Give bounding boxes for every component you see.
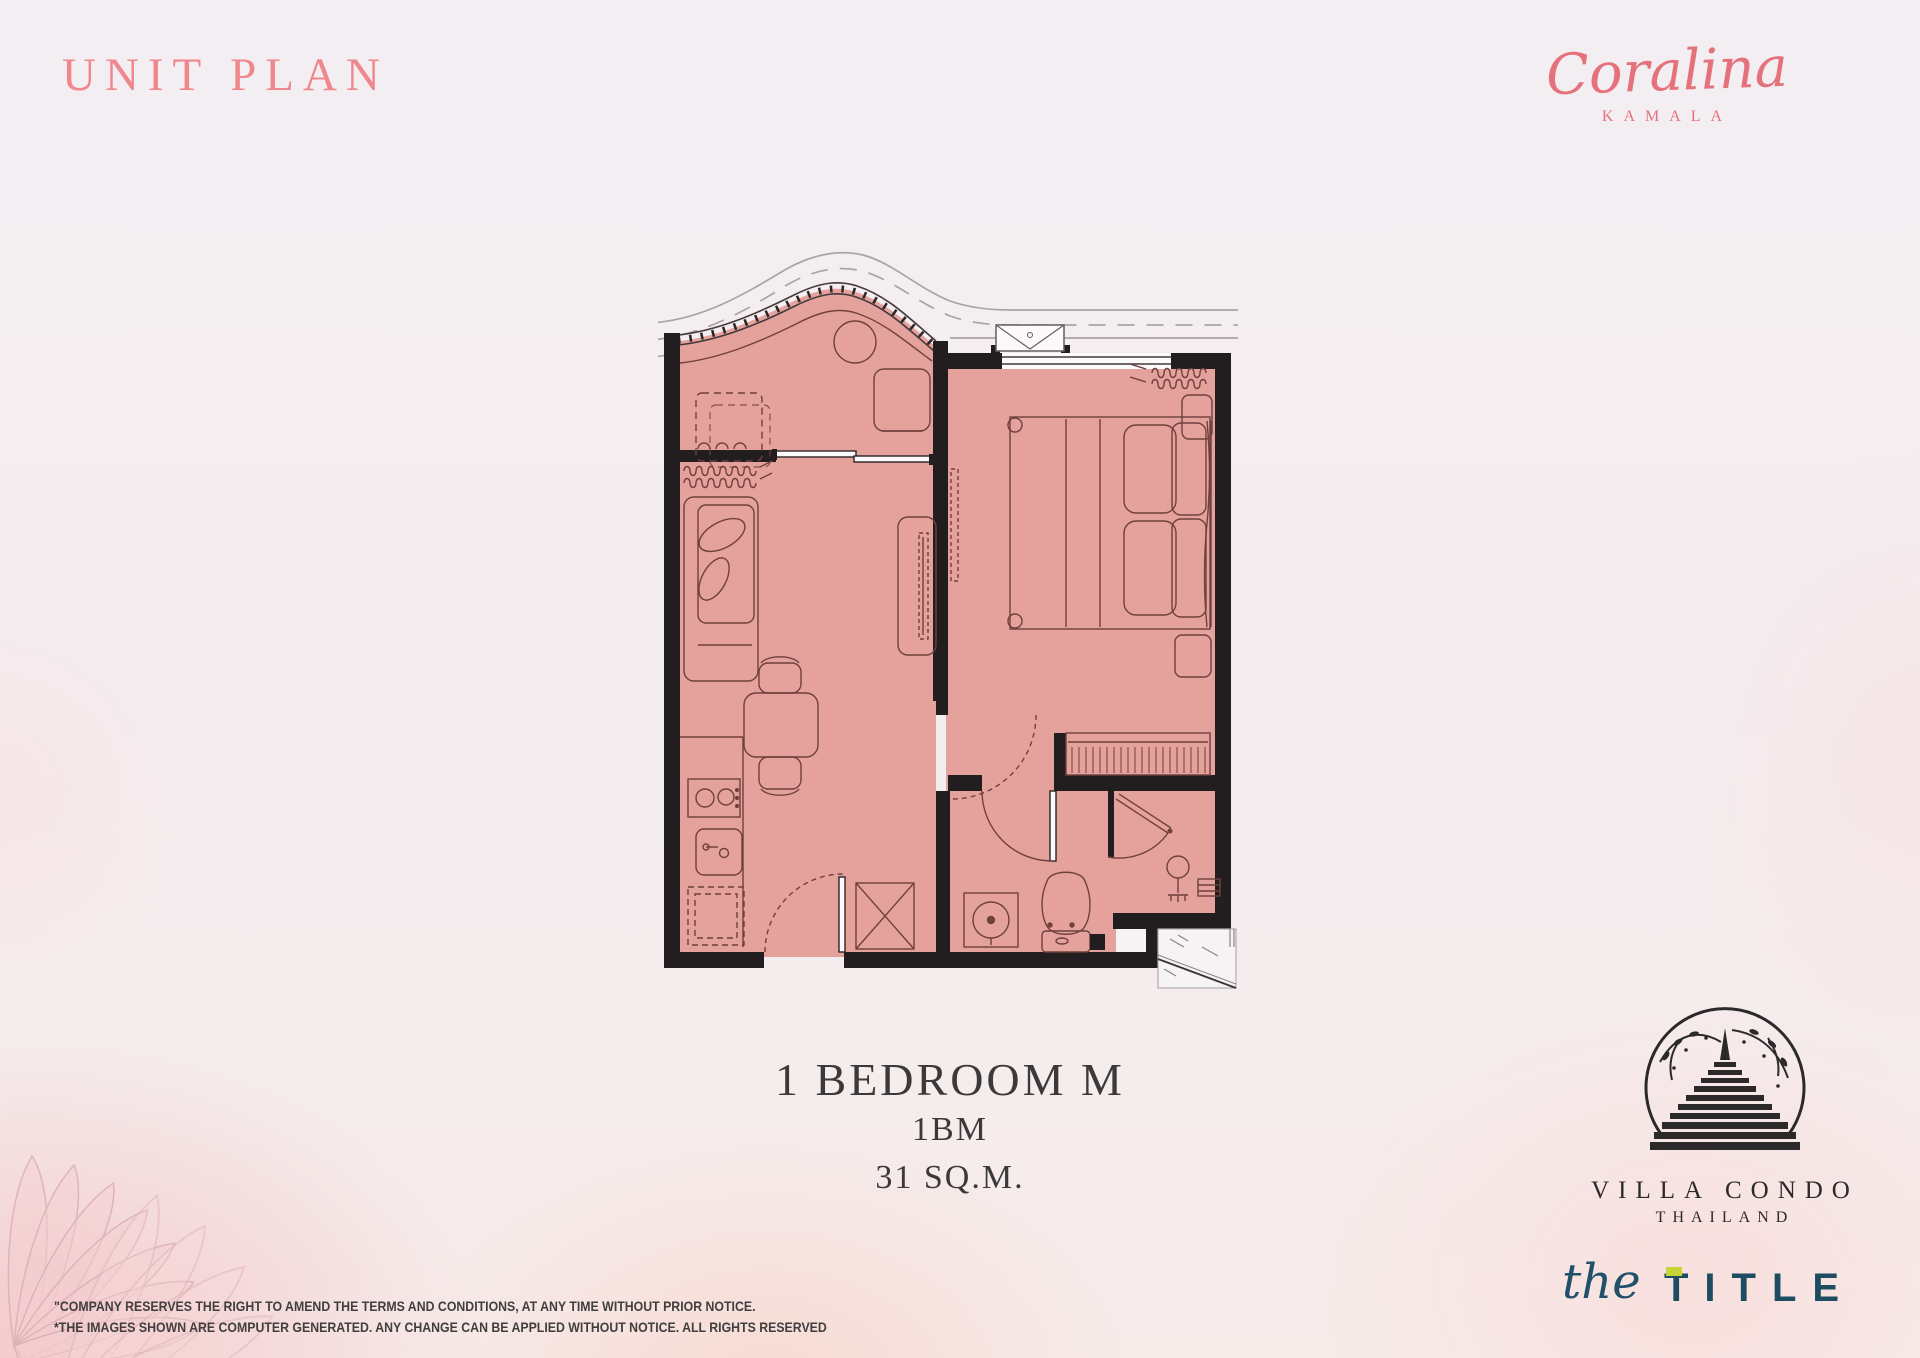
the-title-caps: TITLE (1664, 1266, 1855, 1311)
unit-code: 1BM (650, 1106, 1250, 1154)
coral-watermark (0, 938, 540, 1358)
bedroom-window (1002, 353, 1171, 369)
threshold (1116, 929, 1146, 952)
unit-name: 1 BEDROOM M (650, 1054, 1250, 1106)
entrance-door (839, 877, 845, 952)
villa-condo-icon (1620, 998, 1830, 1170)
unit-info: 1 BEDROOM M 1BM 31 SQ.M. (650, 1054, 1250, 1202)
bathroom-door (1050, 791, 1056, 861)
coralina-script: Coralina (1471, 33, 1863, 111)
villa-condo-country: THAILAND (1560, 1209, 1890, 1227)
the-title-script: the (1562, 1254, 1641, 1310)
ac-ledge (1158, 929, 1236, 988)
the-title-lime-accent (1666, 1267, 1682, 1276)
the-title-logo: the TITLE (1562, 1258, 1902, 1334)
coralina-location: KAMALA (1472, 108, 1862, 126)
disclaimer-line-1: "COMPANY RESERVES THE RIGHT TO AMEND THE… (54, 1296, 827, 1317)
page-title: UNIT PLAN (62, 48, 389, 102)
floor-plan (658, 245, 1238, 990)
unit-area: 31 SQ.M. (650, 1154, 1250, 1202)
disclaimer-line-2: *THE IMAGES SHOWN ARE COMPUTER GENERATED… (54, 1317, 827, 1338)
shower-partition (1108, 791, 1114, 857)
coralina-logo: Coralina KAMALA (1472, 40, 1862, 126)
flush-panel (1090, 934, 1105, 950)
villa-condo-name: VILLA CONDO (1560, 1177, 1890, 1205)
disclaimer: "COMPANY RESERVES THE RIGHT TO AMEND THE… (54, 1296, 827, 1338)
villa-condo-logo: VILLA CONDO THAILAND (1560, 998, 1890, 1227)
ac-unit (996, 325, 1064, 351)
